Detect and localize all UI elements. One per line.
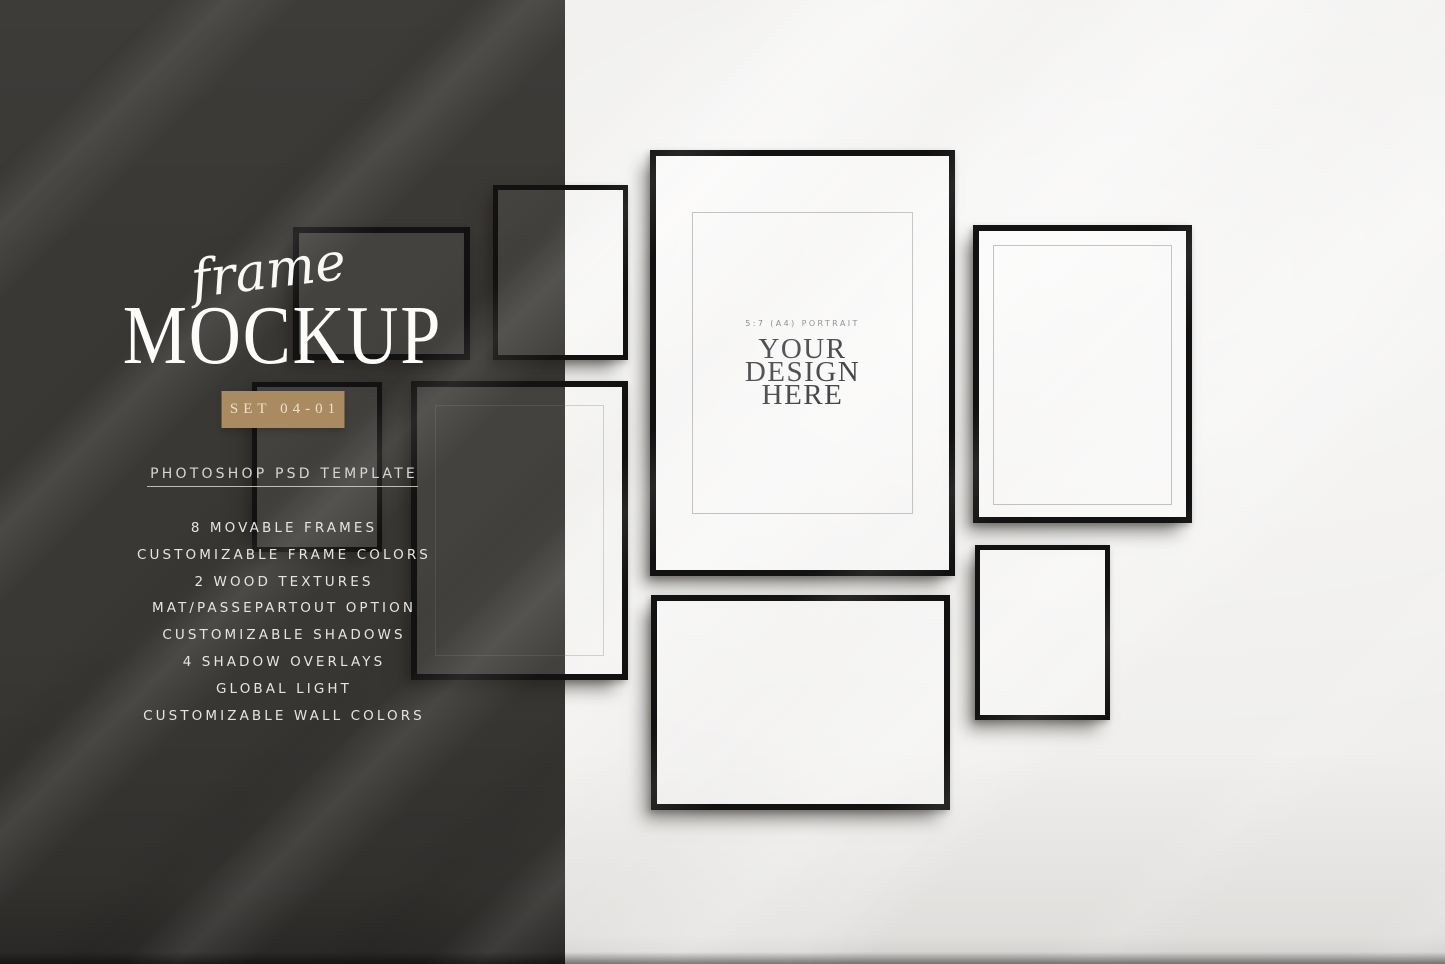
feature-item: 2 WOOD TEXTURES	[0, 569, 565, 596]
mat-opening-line	[993, 245, 1172, 505]
feature-item: CUSTOMIZABLE WALL COLORS	[0, 703, 565, 730]
feature-item: CUSTOMIZABLE SHADOWS	[0, 622, 565, 649]
frame-mockup-preview: 5:7 (A4) PORTRAIT YOUR DESIGN HERE frame…	[0, 0, 1445, 964]
subtitle-text: PHOTOSHOP PSD TEMPLATE	[147, 466, 418, 487]
feature-item: 4 SHADOW OVERLAYS	[0, 649, 565, 676]
frame-portrait-main: 5:7 (A4) PORTRAIT YOUR DESIGN HERE	[650, 150, 955, 576]
frame-portrait-right	[973, 225, 1192, 523]
subtitle: PHOTOSHOP PSD TEMPLATE	[0, 463, 565, 487]
poster-design-text-line3: HERE	[762, 384, 844, 407]
feature-item: CUSTOMIZABLE FRAME COLORS	[0, 542, 565, 569]
info-panel: frame MOCKUP SET 04-01 PHOTOSHOP PSD TEM…	[0, 0, 565, 964]
feature-list: 8 MOVABLE FRAMES CUSTOMIZABLE FRAME COLO…	[0, 515, 565, 729]
set-badge: SET 04-01	[221, 391, 344, 428]
feature-item: MAT/PASSEPARTOUT OPTION	[0, 595, 565, 622]
frame-portrait-small-right	[975, 545, 1110, 720]
poster-size-label: 5:7 (A4) PORTRAIT	[745, 319, 860, 328]
feature-item: GLOBAL LIGHT	[0, 676, 565, 703]
feature-item: 8 MOVABLE FRAMES	[0, 515, 565, 542]
set-badge-label: SET 04-01	[225, 401, 340, 418]
page-title: MOCKUP	[40, 294, 526, 378]
poster-placeholder: 5:7 (A4) PORTRAIT YOUR DESIGN HERE	[692, 212, 913, 514]
frame-landscape-bottom	[651, 595, 950, 810]
